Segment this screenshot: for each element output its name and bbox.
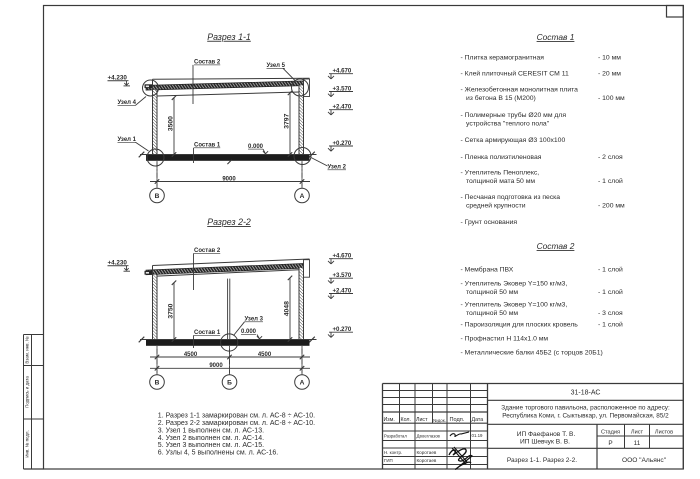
svg-text:Подп.: Подп. [450,417,465,423]
svg-text:- 1 слой: - 1 слой [598,288,623,296]
svg-text:средней крупности: средней крупности [466,202,526,210]
svg-text:4500: 4500 [258,352,272,358]
svg-text:3500: 3500 [168,116,175,131]
svg-text:Двоеглазов: Двоеглазов [417,434,441,439]
svg-text:Разрез 1-1: Разрез 1-1 [207,32,251,42]
svg-text:А: А [300,193,305,200]
svg-text:толщиной мата 50 мм: толщиной мата 50 мм [466,177,535,185]
svg-text:Коротаев: Коротаев [417,458,437,463]
svg-text:- Полимерные трубы Ø20 мм для: - Полимерные трубы Ø20 мм для [461,111,567,119]
svg-text:9000: 9000 [209,363,223,369]
svg-text:Узел 1: Узел 1 [118,137,137,143]
svg-text:- 200 мм: - 200 мм [598,203,625,210]
svg-text:Стадия: Стадия [601,430,620,436]
svg-text:Состав 1: Состав 1 [194,143,221,149]
svg-text:В: В [155,379,160,386]
svg-text:01.19: 01.19 [472,433,484,438]
svg-text:ИП Шевчук В. В.: ИП Шевчук В. В. [520,439,570,446]
svg-text:- Профнастил Н 114х1.0 мм: - Профнастил Н 114х1.0 мм [461,336,549,343]
svg-text:ООО "Альянс": ООО "Альянс" [622,457,667,464]
svg-text:Разработал: Разработал [384,434,407,439]
svg-text:3797: 3797 [284,113,291,128]
svg-text:ИП Фаефанов Т. В.: ИП Фаефанов Т. В. [517,431,576,438]
svg-text:Республика Коми, г. Сыктывкар,: Республика Коми, г. Сыктывкар, ул. Перво… [502,412,669,420]
svg-text:Состав 2: Состав 2 [194,248,221,254]
svg-text:0.000: 0.000 [241,329,257,335]
svg-text:31-18-АС: 31-18-АС [571,390,601,397]
svg-text:Состав 1: Состав 1 [537,32,575,42]
svg-text:Подпись и дата: Подпись и дата [24,376,29,408]
svg-text:А: А [300,379,305,386]
svg-text:- Клей плиточный CERESIT CM 11: - Клей плиточный CERESIT CM 11 [461,70,569,78]
svg-text:0.000: 0.000 [248,144,264,150]
svg-text:из бетона В 15 (М200): из бетона В 15 (М200) [466,94,536,102]
svg-text:- Мембрана ПВХ: - Мембрана ПВХ [461,266,514,274]
svg-text:- Металлические балки 45Б2 (с: - Металлические балки 45Б2 (с торцов 20Б… [461,349,603,357]
svg-text:Изм.: Изм. [384,417,395,423]
svg-text:Состав 1: Состав 1 [194,330,221,336]
svg-text:Узел 3: Узел 3 [245,317,264,323]
svg-text:3. Узел 1 выполнен см. л. АС-1: 3. Узел 1 выполнен см. л. АС-13. [158,427,264,434]
svg-text:4048: 4048 [284,301,291,316]
svg-text:Кол.: Кол. [401,417,411,423]
svg-text:Б: Б [227,379,232,386]
svg-text:№док.: №док. [433,418,446,423]
svg-text:- 2 слоя: - 2 слоя [598,154,623,161]
svg-text:3750: 3750 [168,303,175,318]
svg-text:- 1 слой: - 1 слой [598,321,623,329]
svg-text:- 10 мм: - 10 мм [598,55,621,62]
svg-text:Здание торгового павильона, ра: Здание торгового павильона, расположенно… [501,405,670,412]
svg-text:Дата: Дата [472,417,484,423]
svg-text:Состав 2: Состав 2 [537,241,575,251]
svg-text:- 20 мм: - 20 мм [598,71,621,78]
svg-text:4. Узел 2 выполнен см. л. АС-1: 4. Узел 2 выполнен см. л. АС-14. [158,435,264,442]
svg-text:1. Разрез 1-1 замаркирован см.: 1. Разрез 1-1 замаркирован см. л. АС-8 ÷… [158,412,315,419]
svg-text:Листов: Листов [655,430,673,436]
svg-text:толщиной 50 мм: толщиной 50 мм [466,288,518,296]
svg-text:- 3 слоя: - 3 слоя [598,310,623,317]
svg-text:- Утеплитель Эковер Y=150 кг/м: - Утеплитель Эковер Y=150 кг/м3, [461,281,568,288]
svg-text:9000: 9000 [222,177,236,183]
svg-text:6. Узлы 4, 5 выполнены см. л.: 6. Узлы 4, 5 выполнены см. л. АС-16. [158,450,278,457]
svg-text:- Железобетонная монолитная п: - Железобетонная монолитная плита [461,86,579,94]
svg-text:11: 11 [634,440,641,447]
svg-text:- Пароизоляция для плоских кро: - Пароизоляция для плоских кровель [461,322,579,329]
svg-text:2. Разрез 2-2 замаркирован см.: 2. Разрез 2-2 замаркирован см. л. АС-8 ÷… [158,420,315,427]
svg-text:Разрез 1-1. Разрез 2-2.: Разрез 1-1. Разрез 2-2. [507,457,577,464]
svg-text:ГИП: ГИП [384,458,393,463]
svg-text:- Утеплитель Эковер Y=100 кг/м: - Утеплитель Эковер Y=100 кг/м3, [461,302,568,309]
svg-text:Коротаев: Коротаев [417,450,437,455]
svg-text:устройства "теплого пола": устройства "теплого пола" [466,120,550,128]
svg-text:- 1 слой: - 1 слой [598,177,623,185]
svg-text:Разрез 2-2: Разрез 2-2 [207,217,251,227]
svg-text:- Плитка керамогранитная: - Плитка керамогранитная [461,55,545,62]
svg-text:- 100 мм: - 100 мм [598,95,625,102]
svg-text:Взам. инв. №: Взам. инв. № [24,336,29,363]
svg-text:- Пленка полиэтиленовая: - Пленка полиэтиленовая [461,154,542,161]
svg-text:5. Узел 3 выполнен см. л. АС-1: 5. Узел 3 выполнен см. л. АС-15. [158,442,264,449]
svg-text:- Сетка армирующая Ø3 100х100: - Сетка армирующая Ø3 100х100 [461,137,566,144]
svg-text:- Песчаная подготовка из песка: - Песчаная подготовка из песка [461,194,561,201]
svg-text:Узел 4: Узел 4 [118,100,137,106]
svg-text:Инв. № подл.: Инв. № подл. [24,430,29,457]
svg-text:- 1 слой: - 1 слой [598,266,623,274]
svg-text:Лист: Лист [631,430,644,436]
svg-text:4500: 4500 [184,352,198,358]
svg-text:Узел 2: Узел 2 [328,165,347,171]
svg-text:В: В [155,193,160,200]
svg-text:Лист: Лист [416,417,428,423]
svg-text:Состав 2: Состав 2 [194,60,221,66]
svg-text:Узел 5: Узел 5 [267,63,286,69]
svg-text:толщиной 50 мм: толщиной 50 мм [466,309,518,317]
svg-text:- Грунт основания: - Грунт основания [461,219,518,226]
svg-text:Р: Р [608,440,612,447]
svg-text:Н. контр.: Н. контр. [384,450,402,455]
svg-text:- Утеплитель Пеноплекс,: - Утеплитель Пеноплекс, [461,170,540,177]
